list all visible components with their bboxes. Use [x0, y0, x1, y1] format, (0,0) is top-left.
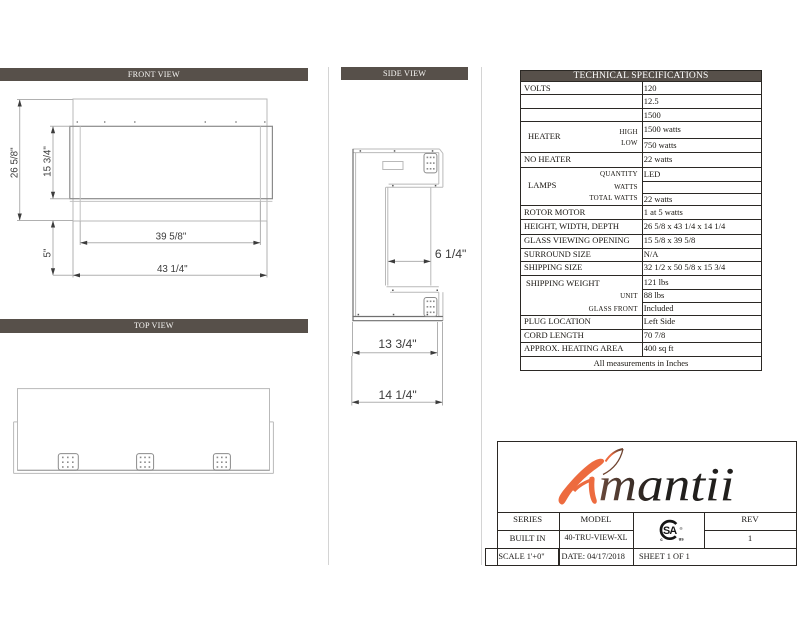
svg-text:c: c [660, 537, 663, 542]
svg-text:5": 5" [42, 248, 53, 257]
svg-text:39 5/8": 39 5/8" [156, 232, 187, 243]
svg-text:15 3/4": 15 3/4" [42, 146, 53, 177]
svg-text:us: us [679, 537, 685, 542]
svg-text:6 1/4": 6 1/4" [435, 247, 466, 261]
svg-text:26 5/8": 26 5/8" [10, 147, 21, 178]
svg-text:mantii: mantii [599, 458, 735, 511]
svg-text:43 1/4": 43 1/4" [157, 264, 188, 275]
svg-text:14 1/4": 14 1/4" [378, 388, 416, 402]
svg-text:®: ® [680, 526, 683, 531]
svg-text:SA: SA [663, 525, 677, 537]
svg-text:13 3/4": 13 3/4" [378, 337, 416, 351]
